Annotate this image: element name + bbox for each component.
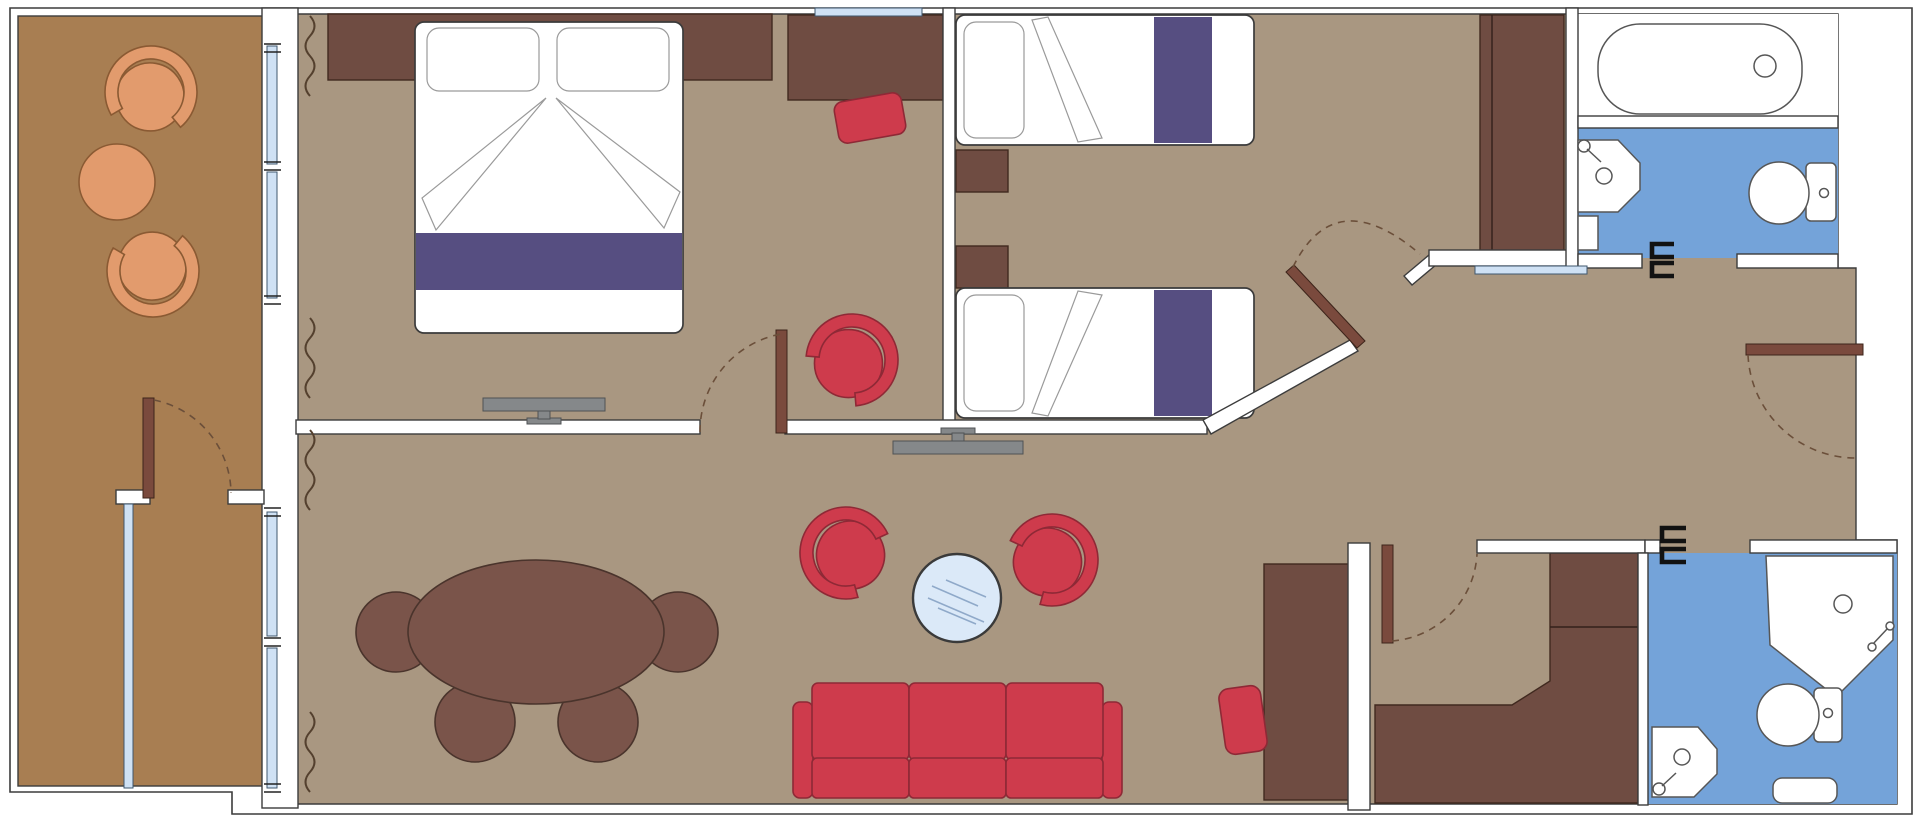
twin-nightstand-1 [956,150,1008,192]
sofa-back-3 [1006,758,1103,798]
hall-south-wall [1477,540,1645,553]
bathroom-main-south-wall-left [1578,254,1642,268]
bathroom-second-north-wall-right [1750,540,1897,553]
bathroom-second-mat [1773,778,1837,803]
twin-bed-2-runner [1154,290,1212,416]
master-pillow-left [427,28,539,91]
master-south-wall [296,420,700,434]
cabinet-stool [1218,684,1269,755]
sofa-back-1 [812,758,909,798]
floor-plan [0,0,1920,818]
shower-knob [1868,643,1876,651]
balcony-window-pane-3 [267,512,277,636]
sofa-cushion-1 [812,683,909,760]
balcony-window-pane-1 [267,46,277,164]
master-tv-screen [483,398,605,411]
master-bed-runner [416,233,682,290]
sofa-arm-right [1102,702,1122,798]
master-pillow-right [557,28,669,91]
hall-north-wall [1429,250,1570,266]
coffee-table [913,554,1001,642]
living-north-wall [785,420,1207,434]
toilet-second-button [1824,709,1833,718]
bathroom-second-sink-drain [1674,749,1690,765]
entry-door-leaf [1746,344,1863,355]
hall-mirror-panel [1475,266,1587,274]
toilet-main-button [1820,189,1829,198]
living-closet-divider-wall [1348,543,1370,810]
living-cabinet [1264,564,1350,800]
nook-twin-divider-wall [943,8,955,434]
shower-drain [1834,595,1852,613]
twin-bed-1-runner [1154,17,1212,143]
twin-bed-2-pillow [964,295,1024,411]
sofa-back-2 [909,758,1006,798]
balcony-table [79,144,155,220]
master-door-leaf [776,330,787,433]
toilet-second-bowl [1757,684,1819,746]
balcony-window-pane-2 [267,172,277,298]
bathroom-main-west-wall [1566,8,1578,268]
dining-table [408,560,664,704]
tub-room-divider-wall [1578,116,1838,128]
bathroom-main-south-wall-right [1737,254,1838,268]
living-tv-screen [893,441,1023,454]
bathtub-drain [1754,55,1776,77]
toilet-main-bowl [1749,162,1809,224]
twin-bed-1-pillow [964,22,1024,138]
sofa-cushion-3 [1006,683,1103,760]
shower-knob [1886,622,1894,630]
nook-window [815,8,922,16]
bathroom-main-sink-drain [1596,168,1612,184]
balcony-floor [18,16,264,786]
floor-plan-canvas [0,0,1920,818]
sofa-arm-left [793,702,813,798]
balcony-window-pane-4 [267,648,277,788]
bathroom-second-west-wall [1638,553,1648,805]
closet-door-leaf [1382,545,1393,643]
sofa-cushion-2 [909,683,1006,760]
balcony-glass-divider [124,504,133,788]
balcony-door-leaf [143,398,154,498]
bathroom-second-north-wall-left [1645,540,1660,553]
twin-nightstand-2 [956,246,1008,288]
nook-desk [788,15,943,100]
bathroom-main-shelf [1578,216,1598,250]
balcony-partition-stub-right [228,490,264,504]
